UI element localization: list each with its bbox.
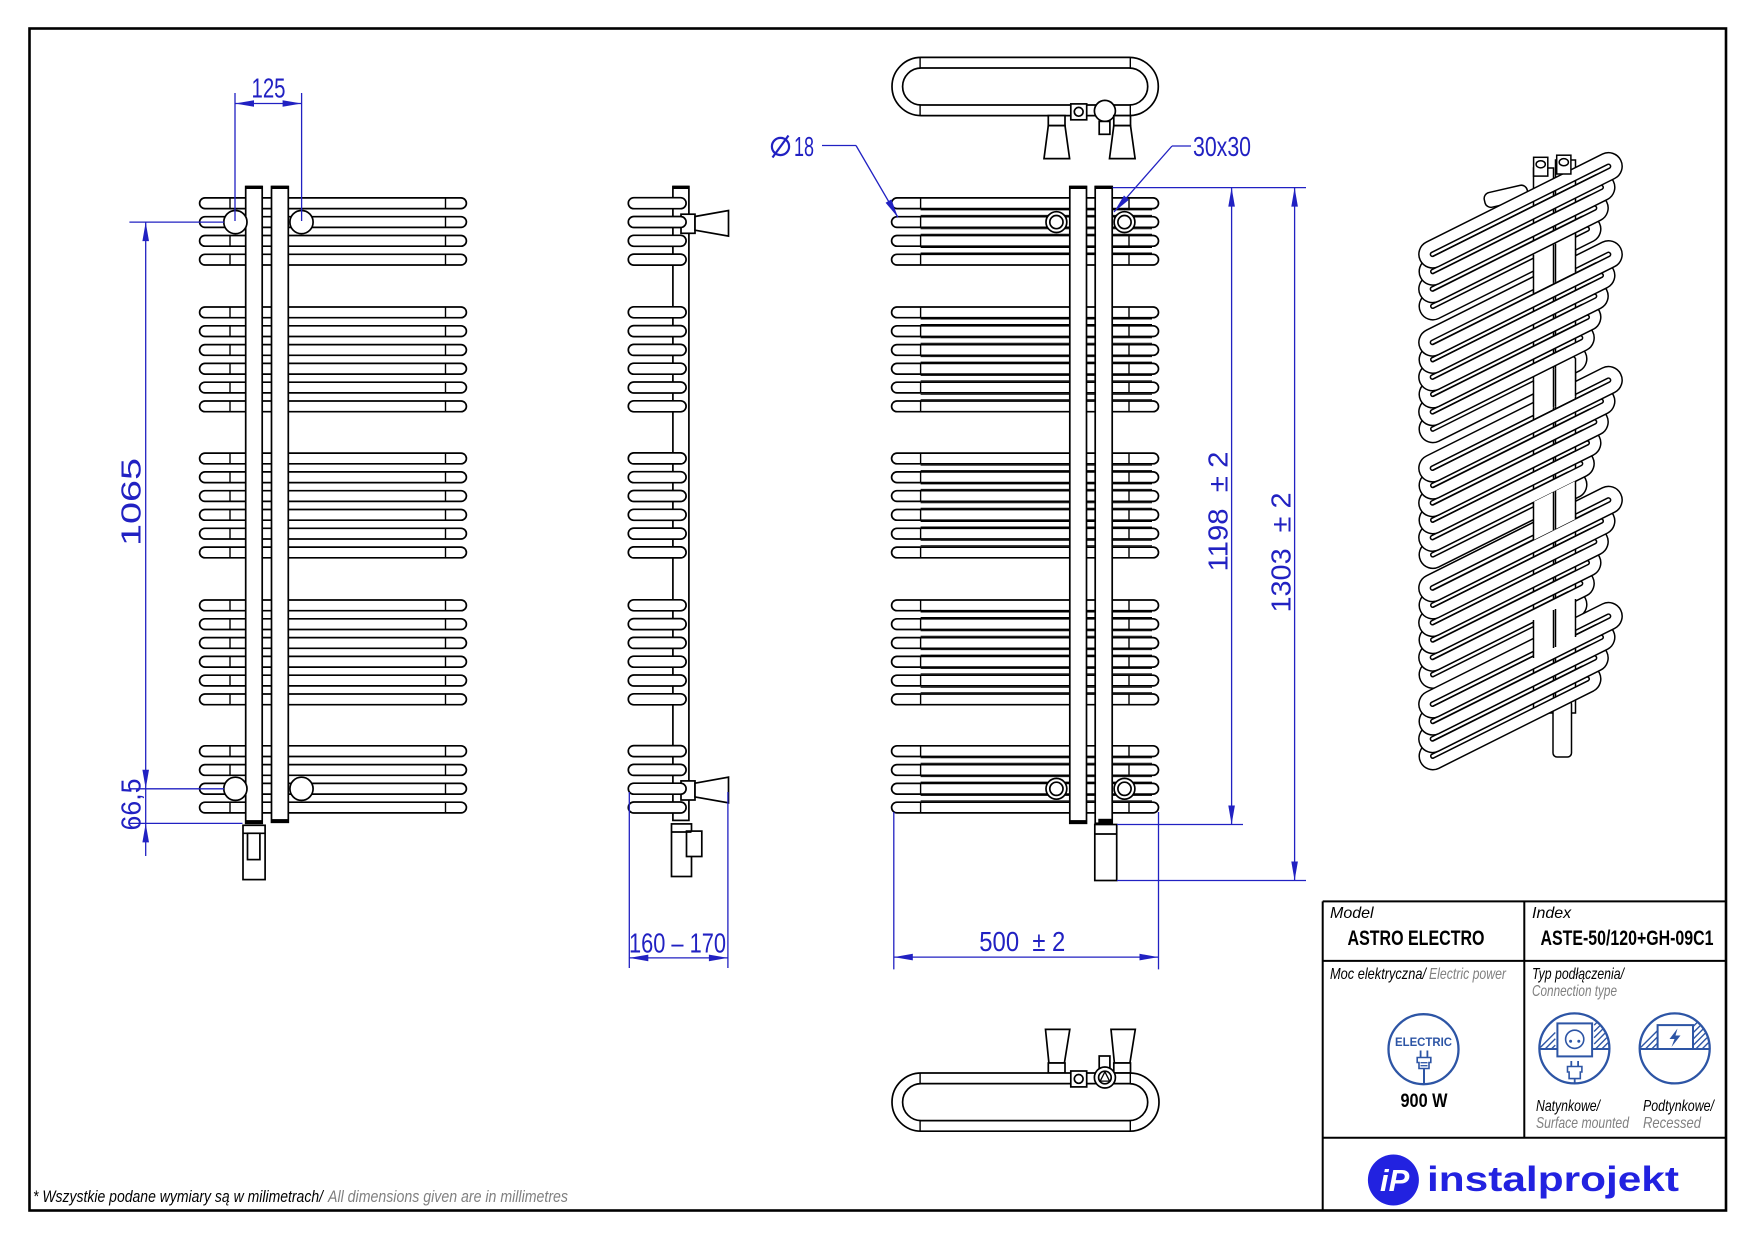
svg-text:Model: Model (1330, 905, 1374, 922)
svg-text:Podtynkowe/: Podtynkowe/ (1643, 1098, 1715, 1115)
svg-text:160 – 170: 160 – 170 (629, 928, 726, 959)
svg-text:ASTE-50/120+GH-09C1: ASTE-50/120+GH-09C1 (1541, 927, 1714, 950)
svg-text:ASTRO ELECTRO: ASTRO ELECTRO (1348, 927, 1485, 950)
svg-text:Moc elektryczna/: Moc elektryczna/ (1330, 966, 1427, 983)
svg-text:Natynkowe/: Natynkowe/ (1536, 1098, 1601, 1115)
svg-text:1198 ± 2: 1198 ± 2 (1203, 452, 1234, 572)
svg-text:Typ podłączenia/: Typ podłączenia/ (1532, 966, 1625, 983)
svg-text:ELECTRIC: ELECTRIC (1395, 1037, 1452, 1049)
svg-text:Surface mounted: Surface mounted (1536, 1115, 1630, 1132)
svg-text:900 W: 900 W (1401, 1091, 1448, 1112)
svg-text:instalprojekt: instalprojekt (1427, 1160, 1679, 1199)
svg-text:* Wszystkie podane wymiary są: * Wszystkie podane wymiary są w milimetr… (33, 1188, 324, 1206)
svg-text:1303 ± 2: 1303 ± 2 (1266, 493, 1297, 613)
svg-text:Connection type: Connection type (1532, 983, 1617, 1000)
svg-text:30x30: 30x30 (1193, 131, 1251, 162)
svg-text:Recessed: Recessed (1643, 1115, 1702, 1132)
svg-text:Electric power: Electric power (1429, 966, 1507, 983)
svg-text:500 ± 2: 500 ± 2 (979, 926, 1065, 957)
svg-text:All dimensions given are in mi: All dimensions given are in millimetres (327, 1188, 568, 1206)
svg-text:18: 18 (794, 131, 814, 162)
svg-text:1065: 1065 (116, 458, 147, 546)
svg-text:Index: Index (1532, 905, 1572, 922)
svg-text:125: 125 (252, 73, 286, 104)
svg-text:iP: iP (1380, 1163, 1410, 1198)
svg-text:66,5: 66,5 (116, 779, 147, 831)
